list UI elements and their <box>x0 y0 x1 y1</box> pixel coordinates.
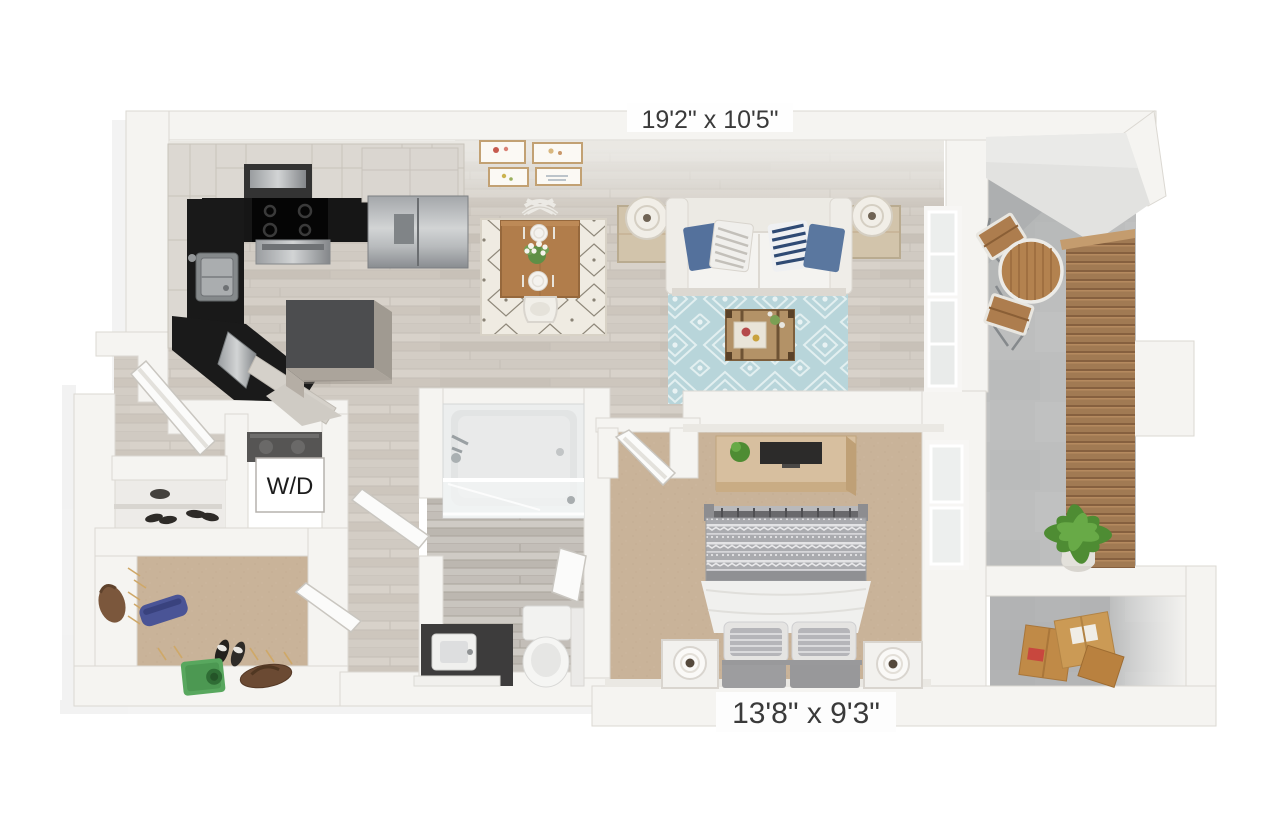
svg-text:W/D: W/D <box>267 473 314 500</box>
svg-text:13'8" x 9'3": 13'8" x 9'3" <box>732 697 880 730</box>
svg-text:19'2" x 10'5": 19'2" x 10'5" <box>641 106 778 134</box>
